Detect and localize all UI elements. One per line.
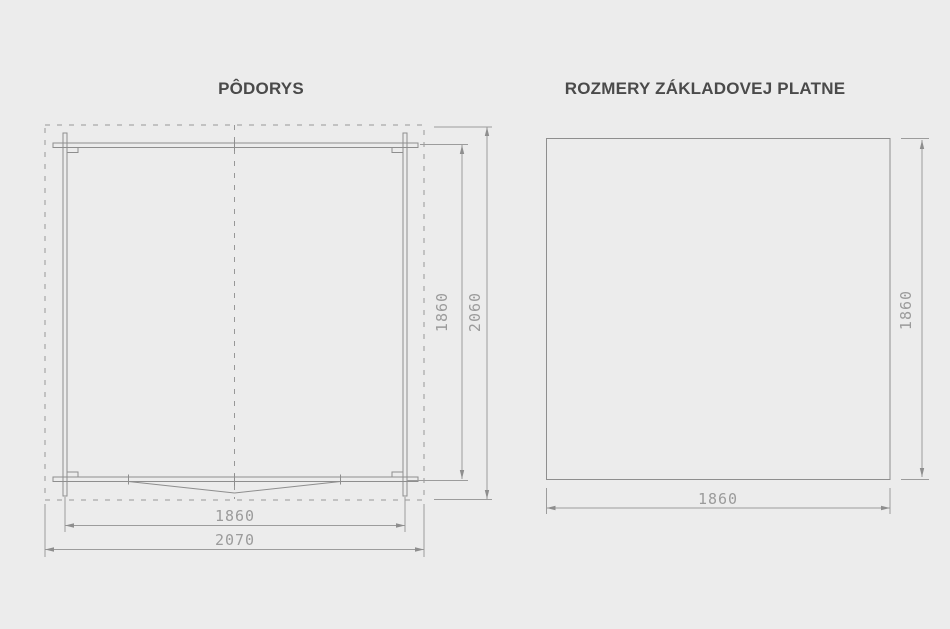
- corner-notch-top-right: [392, 148, 403, 153]
- corner-notch-bottom-right: [392, 472, 403, 477]
- dim-inner-depth: 1860: [407, 145, 468, 481]
- dim-inner-width: 1860: [65, 497, 405, 532]
- wall-bottom: [53, 477, 418, 482]
- arrowhead-right: [415, 547, 424, 551]
- dim-plate-height: 1860: [897, 139, 929, 480]
- wall-right: [403, 133, 407, 496]
- arrowhead-down: [485, 490, 489, 499]
- dimension-value: 1860: [698, 490, 738, 508]
- dimension-value: 1860: [433, 292, 451, 332]
- base-plate-drawing: 1860 1860: [547, 139, 930, 515]
- arrowhead-down: [920, 468, 924, 477]
- arrowhead-left: [547, 506, 556, 510]
- dimension-value: 2060: [466, 292, 484, 332]
- arrowhead-down: [460, 470, 464, 479]
- corner-notch-bottom-left: [67, 472, 78, 477]
- arrowhead-right: [396, 523, 405, 527]
- arrowhead-right: [881, 506, 890, 510]
- corner-notch-top-left: [67, 148, 78, 153]
- dimension-value: 1860: [215, 507, 255, 525]
- arrowhead-up: [920, 140, 924, 149]
- arrowhead-up: [485, 127, 489, 136]
- wall-left: [63, 133, 67, 496]
- roof-outline-dashed: [45, 125, 424, 500]
- base-plate-outline: [547, 139, 891, 480]
- arrowhead-up: [460, 145, 464, 154]
- door-leaf-right: [235, 482, 341, 494]
- wall-top: [53, 143, 418, 148]
- dimension-value: 1860: [897, 290, 915, 330]
- dimension-value: 2070: [215, 531, 255, 549]
- dim-plate-width: 1860: [547, 488, 891, 514]
- floor-plan-drawing: 1860 2060 1860: [45, 125, 492, 557]
- cad-drawing-svg: 1860 2060 1860: [0, 0, 950, 629]
- door-leaf-left: [129, 482, 235, 494]
- technical-drawing-sheet: PÔDORYS ROZMERY ZÁKLADOVEJ PLATNE: [0, 0, 950, 629]
- arrowhead-left: [65, 523, 74, 527]
- arrowhead-left: [45, 547, 54, 551]
